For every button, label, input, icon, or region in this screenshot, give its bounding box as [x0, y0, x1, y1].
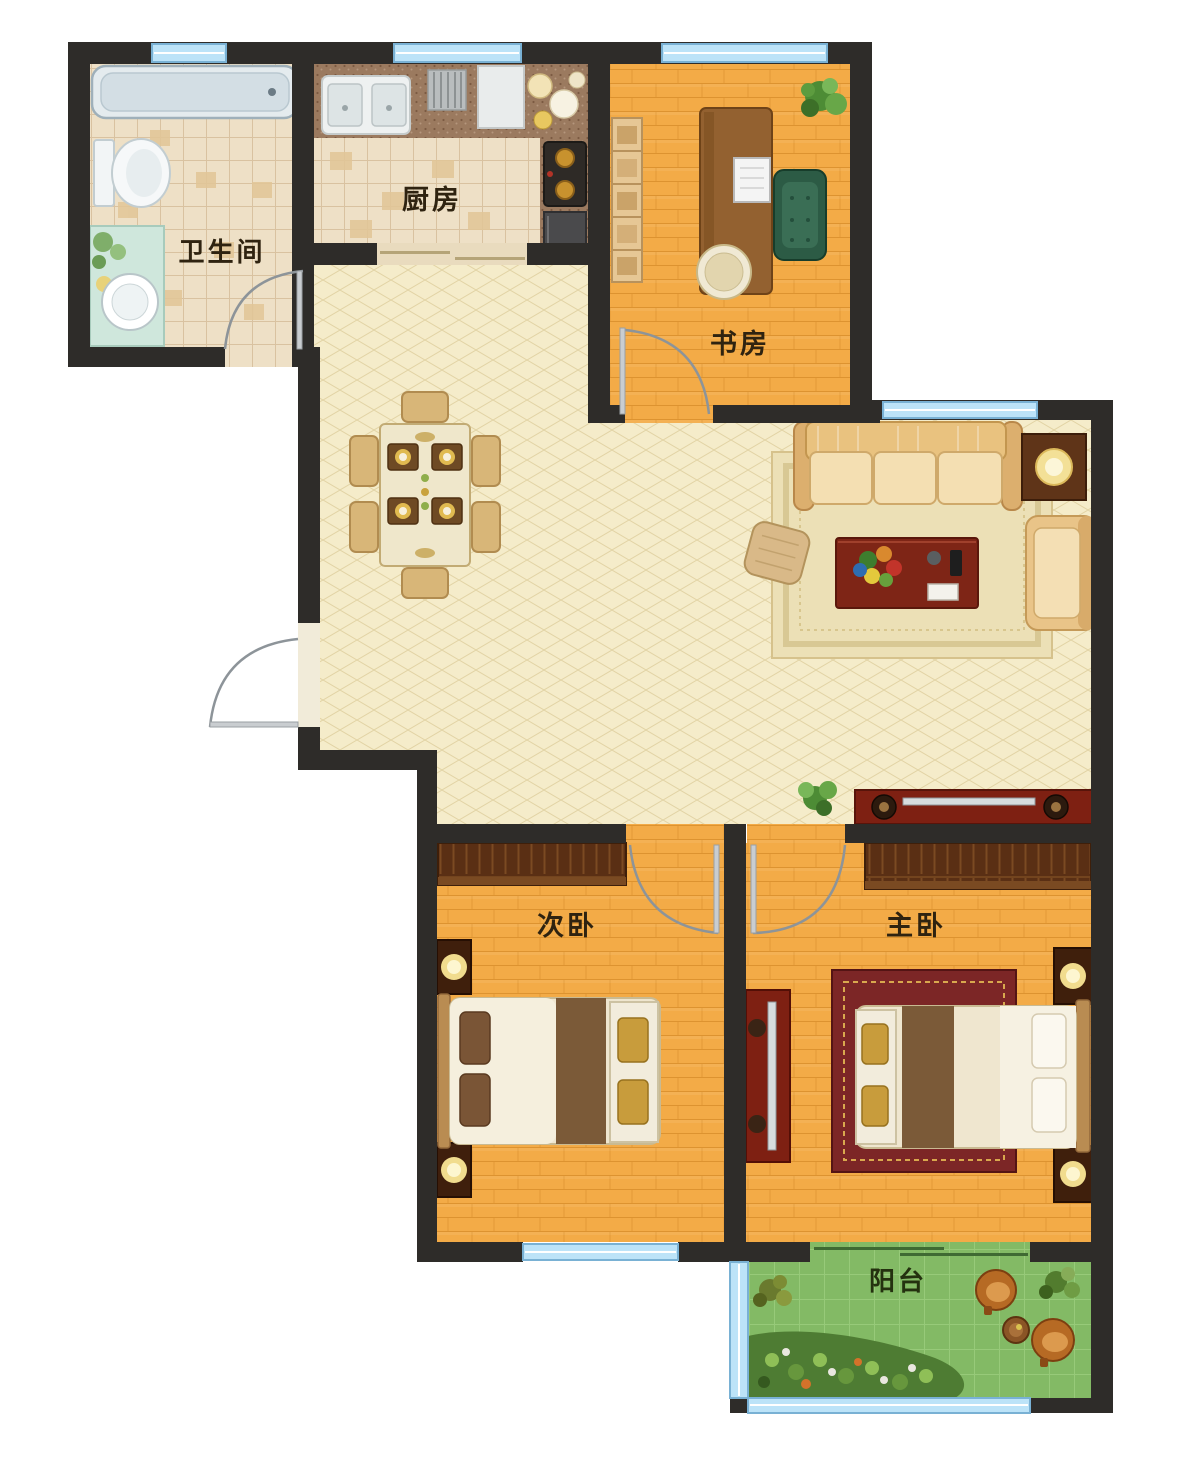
dish-rack-icon — [428, 70, 466, 110]
secondary-bedroom-door-sill — [626, 824, 724, 843]
double-bed-icon — [438, 994, 660, 1148]
master-bedroom-door-panel — [751, 845, 756, 933]
master-bedroom-label: 主卧 — [886, 911, 946, 941]
wall-segment — [678, 1242, 724, 1262]
round-stool-icon — [697, 245, 751, 299]
study-label: 书房 — [710, 329, 770, 359]
bathroom-door-panel — [297, 271, 302, 349]
wall-segment — [417, 824, 626, 843]
wall-segment — [730, 1398, 748, 1413]
study-door-sill — [625, 405, 713, 423]
wall-segment — [68, 347, 225, 367]
entry-door-sill — [298, 623, 320, 727]
wall-segment — [845, 824, 1113, 843]
balcony-slider-track — [900, 1253, 1028, 1256]
wall-segment — [298, 347, 320, 623]
double-sink-icon — [322, 76, 410, 134]
wall-segment — [298, 750, 437, 770]
bathtub-icon — [92, 66, 298, 118]
bookshelf-icon — [612, 118, 642, 282]
tv-stand-icon — [855, 790, 1092, 824]
stove-icon — [544, 142, 586, 206]
window — [523, 1244, 678, 1260]
vanity-sink-icon — [90, 226, 164, 346]
armchair-icon — [1026, 516, 1096, 630]
window — [883, 402, 1037, 418]
wall-segment — [527, 243, 588, 265]
monitor-icon — [734, 158, 770, 202]
kitchen-label: 厨房 — [402, 185, 462, 215]
wall-segment — [746, 1242, 810, 1262]
secondary-bedroom-door-panel — [714, 845, 719, 933]
kitchen-slider-track — [380, 251, 450, 254]
balcony-label: 阳台 — [869, 1266, 927, 1296]
entry-door-arc — [210, 639, 298, 727]
wardrobe-edge — [865, 881, 1091, 889]
floor-plan-drawing: 卫生间 厨房 书房 次卧 主卧 阳台 — [0, 0, 1200, 1459]
office-chair-icon — [774, 170, 826, 260]
dining-table-icon — [380, 424, 470, 566]
wall-segment — [588, 42, 610, 423]
wall-segment — [724, 824, 746, 1262]
wall-segment — [417, 1242, 523, 1262]
balcony-table-icon — [1003, 1317, 1029, 1343]
master-bedroom-door-sill — [747, 824, 845, 843]
floor-plan-page: 卫生间 厨房 书房 次卧 主卧 阳台 — [0, 0, 1200, 1459]
study-door-panel — [620, 328, 625, 414]
entry-door-panel — [210, 722, 298, 727]
balcony-slider-track — [814, 1247, 944, 1250]
wall-segment — [588, 405, 625, 423]
window — [394, 44, 521, 62]
window — [662, 44, 827, 62]
balcony-slider-sill — [810, 1242, 1030, 1262]
toilet-icon — [94, 139, 170, 207]
wall-segment — [68, 42, 90, 367]
double-bed-icon — [856, 1000, 1090, 1152]
bathroom-door-sill — [225, 347, 298, 367]
sofa-icon — [794, 422, 1022, 510]
wall-segment — [292, 243, 377, 265]
bathroom-label: 卫生间 — [178, 237, 265, 267]
wardrobe-edge — [438, 877, 626, 885]
kitchen-slider-track — [455, 257, 525, 260]
wall-segment — [292, 62, 314, 367]
wall-segment — [850, 42, 872, 420]
wall-segment — [1091, 1242, 1113, 1413]
secondary-bedroom-label: 次卧 — [537, 911, 597, 941]
wall-segment — [1030, 1398, 1113, 1413]
window — [152, 44, 226, 62]
tv-cabinet-icon — [746, 990, 790, 1162]
lamp-side-table-icon — [1022, 434, 1086, 500]
kitchen-appliance-icon — [478, 66, 524, 128]
coffee-table-icon — [836, 538, 978, 608]
